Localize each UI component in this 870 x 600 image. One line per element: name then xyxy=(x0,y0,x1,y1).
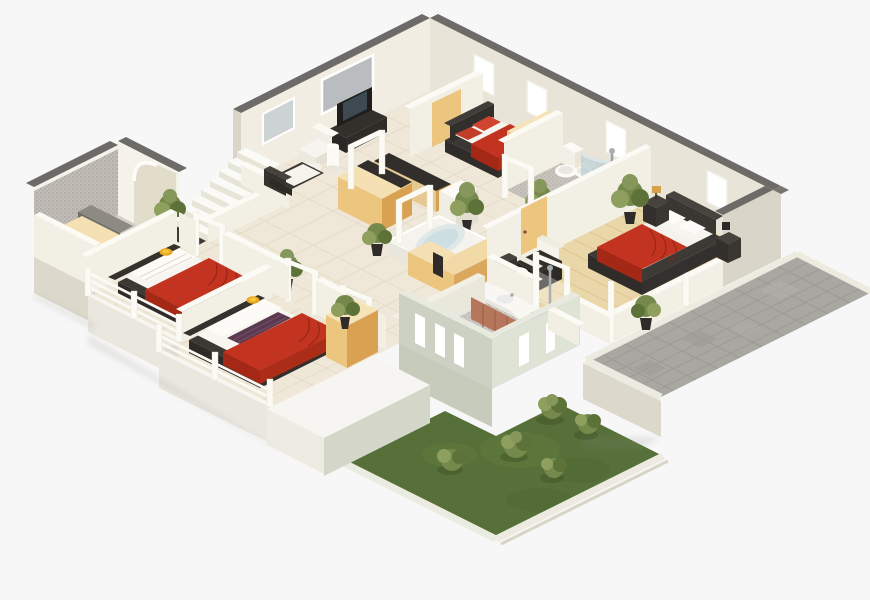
slit-window-5 xyxy=(519,332,529,367)
wall-back-right-end xyxy=(773,186,781,262)
floor-plan-stage xyxy=(0,0,870,600)
lamp-dark xyxy=(722,222,730,230)
slit-window-2 xyxy=(435,323,445,358)
floor-plan-render xyxy=(0,0,870,600)
slit-window-1 xyxy=(415,313,425,348)
slit-window-3 xyxy=(454,333,464,368)
lamp-amber xyxy=(652,186,661,193)
bush xyxy=(437,449,466,475)
floor-lamp xyxy=(327,143,339,171)
